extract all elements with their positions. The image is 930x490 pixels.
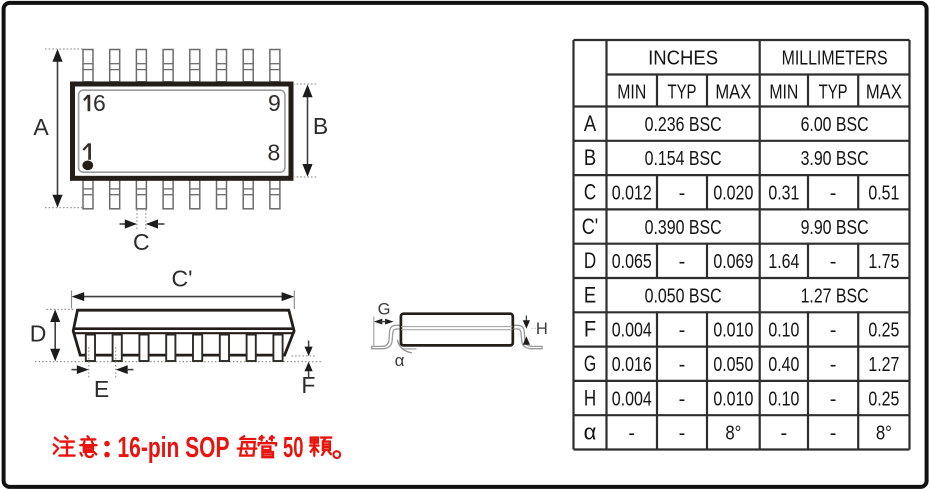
svg-text:H: H	[584, 385, 596, 410]
svg-text:0.050 BSC: 0.050 BSC	[645, 285, 722, 307]
svg-text:MAX: MAX	[866, 82, 902, 104]
svg-text:MAX: MAX	[715, 82, 751, 104]
svg-text:0.069: 0.069	[713, 251, 753, 273]
svg-text:-: -	[679, 320, 686, 342]
svg-text:0.25: 0.25	[868, 320, 899, 342]
svg-text:0.236 BSC: 0.236 BSC	[645, 114, 722, 136]
svg-text:F: F	[301, 372, 315, 398]
svg-text:-: -	[679, 354, 686, 376]
svg-text:B: B	[313, 113, 328, 139]
svg-text:C': C'	[171, 266, 192, 292]
svg-text:0.390 BSC: 0.390 BSC	[645, 217, 722, 239]
svg-text:E: E	[584, 282, 596, 307]
svg-text:-: -	[830, 251, 837, 273]
svg-text:8°: 8°	[876, 423, 892, 445]
svg-text:0.40: 0.40	[768, 354, 799, 376]
svg-text:G: G	[378, 301, 391, 319]
svg-text:9: 9	[268, 90, 281, 116]
svg-text:-: -	[628, 423, 635, 445]
svg-text:C: C	[584, 179, 596, 204]
svg-text:16-pin SOP: 16-pin SOP	[118, 432, 230, 464]
svg-text:INCHES: INCHES	[648, 48, 718, 70]
svg-text:9.90 BSC: 9.90 BSC	[801, 217, 869, 239]
svg-text:0.020: 0.020	[713, 182, 753, 204]
svg-text:0.004: 0.004	[612, 320, 652, 342]
svg-text:-: -	[830, 423, 837, 445]
svg-text:E: E	[94, 376, 109, 402]
svg-text:-: -	[781, 423, 788, 445]
svg-text:G: G	[584, 351, 596, 376]
svg-text:A: A	[33, 114, 49, 140]
svg-text:1.27 BSC: 1.27 BSC	[801, 285, 869, 307]
svg-text:0.25: 0.25	[868, 388, 899, 410]
svg-text:1.75: 1.75	[868, 251, 899, 273]
svg-text:8°: 8°	[725, 423, 741, 445]
svg-text:α: α	[584, 420, 597, 445]
svg-text:3.90 BSC: 3.90 BSC	[801, 148, 869, 170]
svg-text:F: F	[584, 317, 596, 342]
svg-text:0.050: 0.050	[713, 354, 753, 376]
svg-text:B: B	[584, 145, 596, 170]
svg-text:0.31: 0.31	[768, 182, 799, 204]
svg-text:1.27: 1.27	[868, 354, 899, 376]
svg-text:0.004: 0.004	[612, 388, 652, 410]
svg-text:C': C'	[582, 214, 599, 239]
svg-text:-: -	[830, 320, 837, 342]
svg-text:0.065: 0.065	[612, 251, 652, 273]
svg-text:6.00 BSC: 6.00 BSC	[801, 114, 869, 136]
svg-text:0.51: 0.51	[868, 182, 899, 204]
svg-text:-: -	[679, 423, 686, 445]
svg-text:MILLIMETERS: MILLIMETERS	[782, 48, 888, 70]
svg-text:D: D	[584, 248, 596, 273]
svg-text:-: -	[679, 251, 686, 273]
svg-text:A: A	[584, 111, 597, 136]
svg-text:50: 50	[283, 432, 304, 464]
svg-text:C: C	[133, 229, 150, 255]
svg-text:-: -	[679, 388, 686, 410]
svg-text:0.010: 0.010	[713, 388, 753, 410]
svg-text:-: -	[830, 182, 837, 204]
svg-text:MIN: MIN	[617, 82, 646, 104]
svg-text:0.012: 0.012	[612, 182, 652, 204]
svg-text:0.154 BSC: 0.154 BSC	[645, 148, 722, 170]
svg-text:0.016: 0.016	[612, 354, 652, 376]
svg-text:0.010: 0.010	[713, 320, 753, 342]
svg-text:-: -	[830, 354, 837, 376]
svg-text:6: 6	[93, 90, 106, 116]
svg-text:8: 8	[268, 140, 281, 166]
svg-text:α: α	[395, 351, 405, 370]
svg-text:0.10: 0.10	[768, 320, 799, 342]
svg-text:MIN: MIN	[769, 82, 798, 104]
svg-text:TYP: TYP	[819, 82, 848, 104]
svg-text:D: D	[30, 321, 47, 347]
svg-text:-: -	[679, 182, 686, 204]
svg-text:H: H	[536, 320, 548, 338]
svg-text:0.10: 0.10	[768, 388, 799, 410]
svg-text:-: -	[830, 388, 837, 410]
svg-text:TYP: TYP	[668, 82, 697, 104]
svg-text:1.64: 1.64	[768, 251, 799, 273]
